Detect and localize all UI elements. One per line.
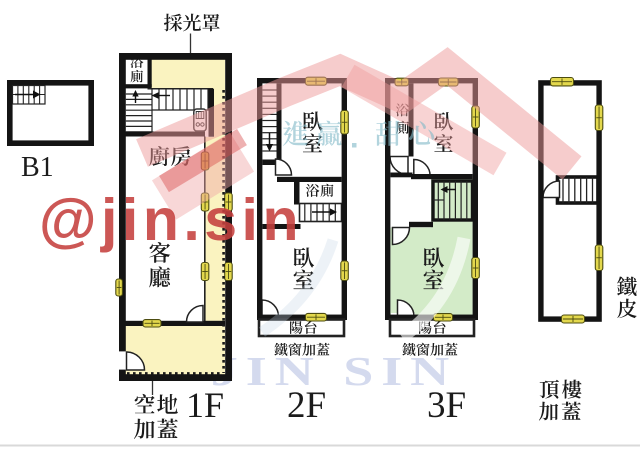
svg-text:1F: 1F <box>186 385 224 425</box>
svg-text:B1: B1 <box>21 152 54 183</box>
svg-text:3F: 3F <box>427 385 466 426</box>
svg-text:@jin.sin: @jin.sin <box>39 187 303 253</box>
svg-text:JIN SIN: JIN SIN <box>211 349 457 394</box>
svg-text:2F: 2F <box>287 385 326 426</box>
